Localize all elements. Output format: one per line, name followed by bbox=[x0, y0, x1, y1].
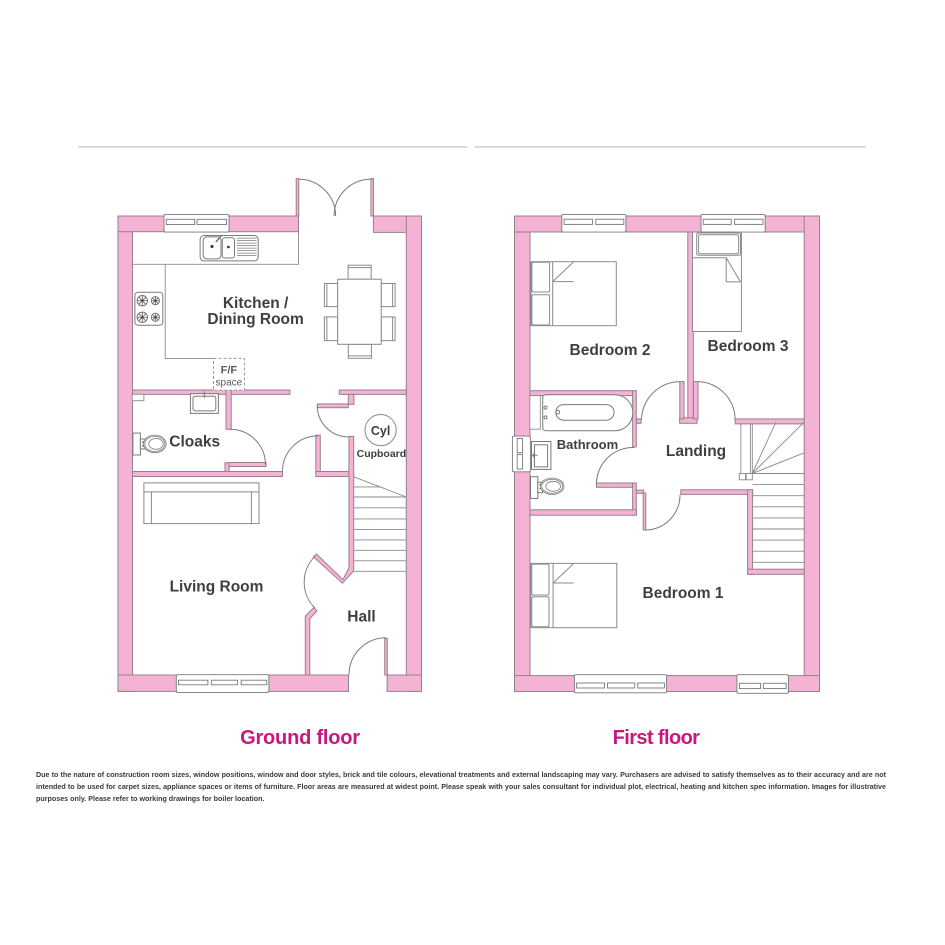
svg-text:space: space bbox=[216, 378, 243, 389]
svg-text:Cyl: Cyl bbox=[371, 424, 390, 438]
svg-text:Bedroom 1: Bedroom 1 bbox=[643, 585, 724, 602]
svg-text:Cupboard: Cupboard bbox=[357, 448, 407, 460]
svg-text:Cloaks: Cloaks bbox=[169, 434, 220, 451]
svg-text:Landing: Landing bbox=[666, 443, 726, 460]
svg-text:Living Room: Living Room bbox=[170, 579, 264, 596]
svg-text:F/F: F/F bbox=[221, 365, 238, 377]
svg-text:Dining Room: Dining Room bbox=[207, 311, 303, 328]
svg-text:Hall: Hall bbox=[347, 609, 375, 626]
svg-text:Bedroom 2: Bedroom 2 bbox=[570, 342, 651, 359]
svg-text:Kitchen /: Kitchen / bbox=[223, 295, 289, 312]
svg-text:Bedroom 3: Bedroom 3 bbox=[708, 338, 789, 355]
svg-text:Bathroom: Bathroom bbox=[557, 437, 618, 452]
